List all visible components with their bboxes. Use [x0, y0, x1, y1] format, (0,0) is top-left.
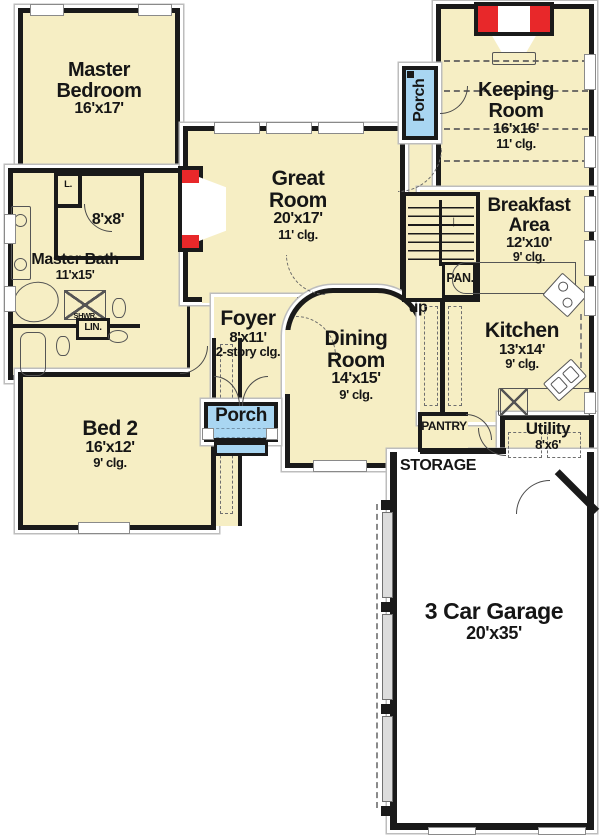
keeping-fireplace-red-right [530, 6, 550, 32]
pantry-cabinet-2 [448, 306, 462, 406]
window [584, 136, 596, 168]
greatroom-fireplace-red-top [182, 170, 199, 183]
room-title: Master Bath [12, 252, 138, 268]
bath-partition-h [8, 324, 140, 328]
room-title: 3 Car Garage [406, 600, 582, 624]
garage-post-2 [381, 602, 391, 612]
label-garage: 3 Car Garage 20'x35' [406, 600, 582, 642]
label-closet-8x8: 8'x8' [76, 212, 140, 228]
lin-label: LIN. [78, 323, 108, 333]
room-clg: 9' clg. [308, 388, 404, 401]
room-dims: 14'x15' [308, 371, 404, 387]
label-keeping-room: Keeping Room 16'x16' 11' clg. [468, 80, 564, 150]
label-kitchen: Kitchen 13'x14' 9' clg. [470, 320, 574, 370]
room-dims: 16'x12' [48, 440, 172, 456]
l-label: L. [56, 180, 80, 190]
window [4, 214, 16, 244]
window [266, 122, 312, 134]
room-dims: 16'x17' [40, 101, 158, 117]
porch-step [214, 442, 268, 456]
window [584, 286, 596, 316]
room-clg: 11' clg. [252, 228, 344, 241]
kitchen-cabinet-x [500, 388, 528, 416]
window [313, 460, 367, 472]
burner-2 [560, 296, 574, 310]
window [584, 392, 596, 414]
greatroom-firebox [199, 177, 226, 241]
floor-plan: ↓ PAN. up L. SHWR. LIN. [0, 0, 600, 835]
kitchen-cabinet-edge [580, 314, 582, 368]
room-dims: 16'x16' [468, 121, 564, 136]
room-title: PANTRY [416, 420, 472, 432]
room-title: Utility [508, 420, 588, 438]
label-great-room: Great Room 20'x17' 11' clg. [252, 168, 344, 241]
room-title: Great Room [252, 168, 344, 211]
room-title: STORAGE [398, 458, 478, 474]
window [138, 4, 172, 16]
label-porch-side: Porch [412, 70, 428, 130]
garage-step-2 [538, 827, 586, 835]
window [584, 196, 596, 232]
label-porch-front: Porch [206, 406, 276, 426]
window [214, 122, 260, 134]
room-title: Bed 2 [48, 418, 172, 440]
bath2-sink [108, 330, 128, 343]
label-master-bedroom: Master Bedroom 16'x17' [40, 60, 158, 118]
window [4, 286, 16, 312]
room-clg: 2-story clg. [200, 345, 296, 358]
label-dining-room: Dining Room 14'x15' 9' clg. [308, 328, 404, 401]
keeping-beam-4 [444, 160, 588, 162]
stair-arrow: ↓ [450, 214, 457, 229]
porch-edge [211, 428, 271, 438]
room-dims: 11'x15' [12, 268, 138, 281]
room-title: Kitchen [470, 320, 574, 342]
room-dims: 12'x10' [482, 235, 576, 250]
window [584, 240, 596, 276]
room-title: Dining Room [308, 328, 404, 371]
room-dims: 13'x14' [470, 342, 574, 357]
garage-door-overhang [376, 504, 378, 808]
pantry-cabinet-1 [424, 306, 438, 406]
keeping-hearth [492, 52, 536, 65]
window [318, 122, 364, 134]
window [30, 4, 64, 16]
garage-post-4 [381, 806, 391, 816]
keeping-fireplace-red-left [478, 6, 498, 32]
garage-door-1 [382, 512, 393, 598]
sink-basin-1 [550, 376, 568, 394]
room-clg: 9' clg. [482, 251, 576, 264]
label-utility: Utility 8'x6' [508, 420, 588, 451]
garage-post-1 [381, 500, 391, 510]
garage-door-3 [382, 716, 393, 802]
porch-post-left [202, 428, 214, 440]
room-title: Master Bedroom [40, 60, 158, 101]
porch-post-right [266, 428, 278, 440]
window [584, 54, 596, 90]
label-foyer: Foyer 8'x11' 2-story clg. [200, 308, 296, 358]
toilet-1 [112, 298, 126, 318]
garage-door-2 [382, 614, 393, 700]
keeping-beam-1 [444, 60, 588, 62]
garage-step-1 [428, 827, 476, 835]
bath2-tub [20, 332, 46, 376]
window [78, 522, 130, 534]
room-clg: 11' clg. [468, 137, 564, 150]
pantry-divider-wall [440, 300, 445, 412]
label-breakfast-area: Breakfast Area 12'x10' 9' clg. [482, 196, 576, 263]
room-title: Porch [412, 70, 428, 130]
room-clg: 9' clg. [470, 357, 574, 370]
room-dims: 8'x8' [76, 212, 140, 228]
toilet-2 [56, 336, 70, 356]
room-title: Breakfast Area [482, 196, 576, 235]
room-dims: 20'x35' [406, 624, 582, 643]
room-title: Porch [206, 406, 276, 426]
label-bed2: Bed 2 16'x12' 9' clg. [48, 418, 172, 469]
garage-post-3 [381, 704, 391, 714]
greatroom-fireplace-red-bottom [182, 235, 199, 248]
label-storage: STORAGE [398, 458, 478, 474]
label-master-bath: Master Bath 11'x15' [12, 252, 138, 282]
room-title: Foyer [200, 308, 296, 330]
label-pantry: PANTRY [416, 420, 472, 432]
room-title: Keeping Room [468, 80, 564, 121]
stair-rail [439, 200, 442, 266]
room-clg: 9' clg. [48, 456, 172, 469]
room-dims: 8'x6' [508, 438, 588, 451]
room-dims: 20'x17' [252, 211, 344, 227]
burner-1 [556, 280, 570, 294]
room-dims: 8'x11' [200, 330, 296, 345]
closet-L [54, 172, 82, 208]
